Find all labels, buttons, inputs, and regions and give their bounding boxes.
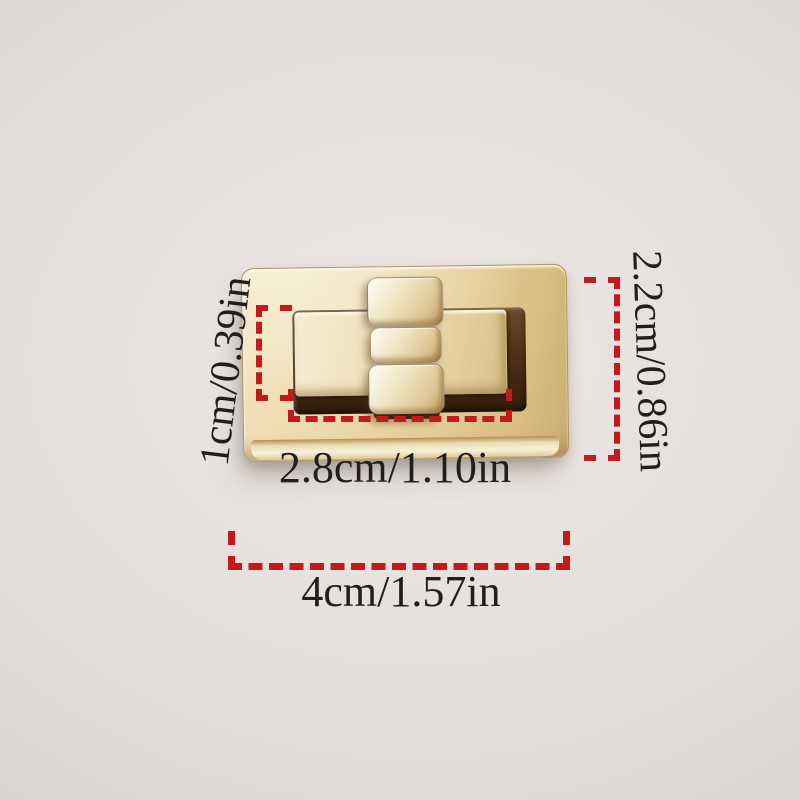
dimension-label-inner-width: 2.8cm/1.10in — [279, 446, 511, 490]
dimension-bracket-outer-width — [228, 531, 570, 570]
knob-segment-middle — [370, 326, 442, 363]
dimension-bracket-outer-height — [584, 277, 620, 461]
dimension-label-outer-width: 4cm/1.57in — [301, 570, 500, 614]
dimension-bracket-inner-width — [288, 389, 512, 422]
knob-segment-top — [367, 276, 444, 326]
dimension-bracket-inner-height — [256, 305, 292, 401]
product-photo: 1cm/0.39in 2.2cm/0.86in 2.8cm/1.10in 4cm… — [0, 0, 800, 800]
dimension-label-outer-height: 2.2cm/0.86in — [625, 250, 675, 473]
